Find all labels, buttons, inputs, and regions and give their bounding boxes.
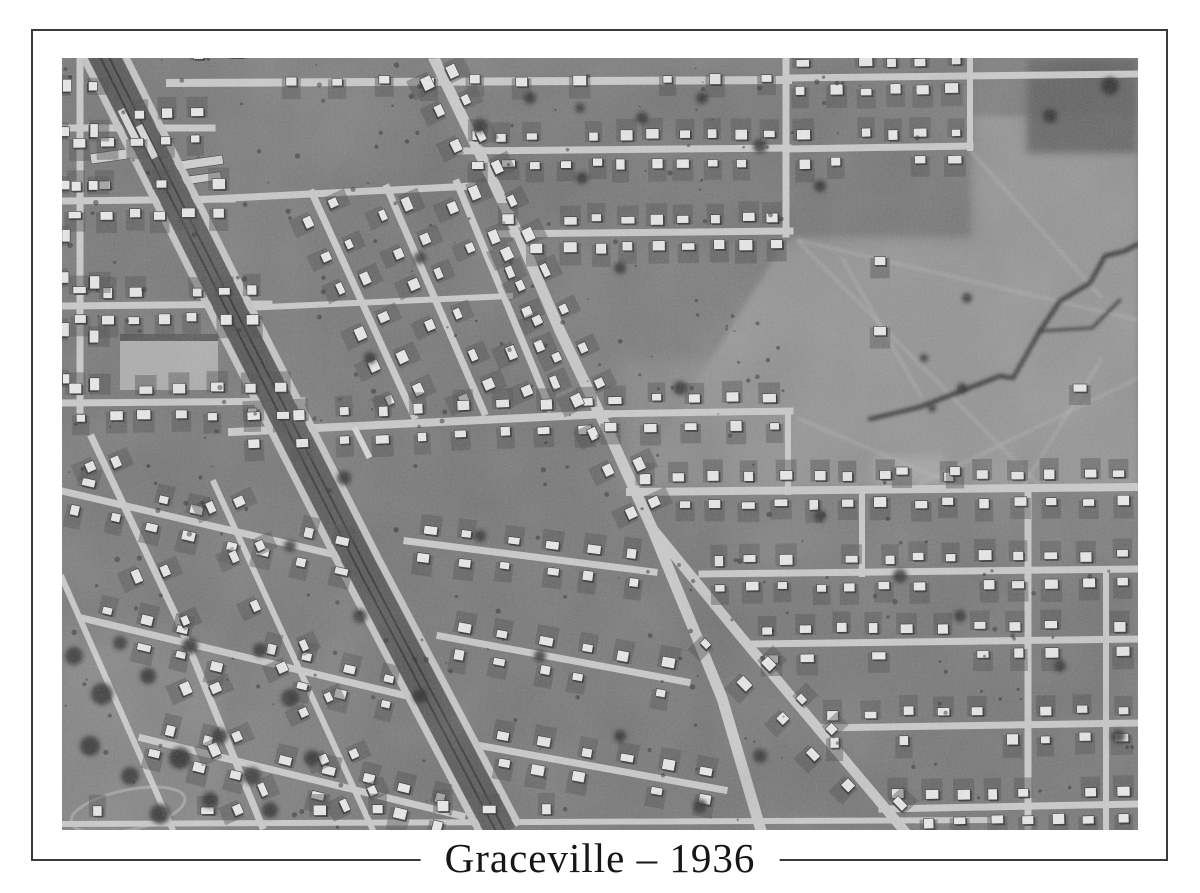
framed-print-page: Graceville – 1936 (0, 0, 1200, 893)
aerial-photograph (62, 58, 1138, 830)
caption-title: Graceville – 1936 (421, 834, 780, 882)
aerial-photo-svg (62, 58, 1138, 830)
